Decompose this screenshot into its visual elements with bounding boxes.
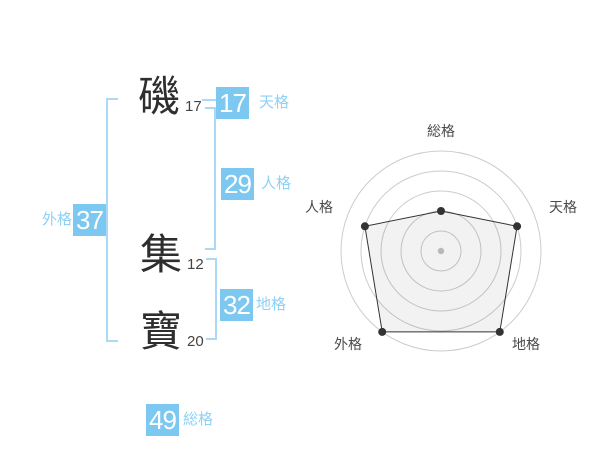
name-fortune-panel: 磯 17 集 12 寶 20 17 天格 29 人格 32 地格 外格 37 4…	[0, 0, 600, 470]
radar-axis-label: 天格	[549, 199, 577, 215]
radar-axis-label: 総格	[427, 123, 455, 139]
radar-axis-label: 地格	[512, 336, 540, 352]
radar-axis-label: 外格	[334, 336, 362, 352]
radar-chart: 総格天格地格外格人格	[0, 0, 600, 470]
radar-axis-label: 人格	[305, 199, 333, 215]
